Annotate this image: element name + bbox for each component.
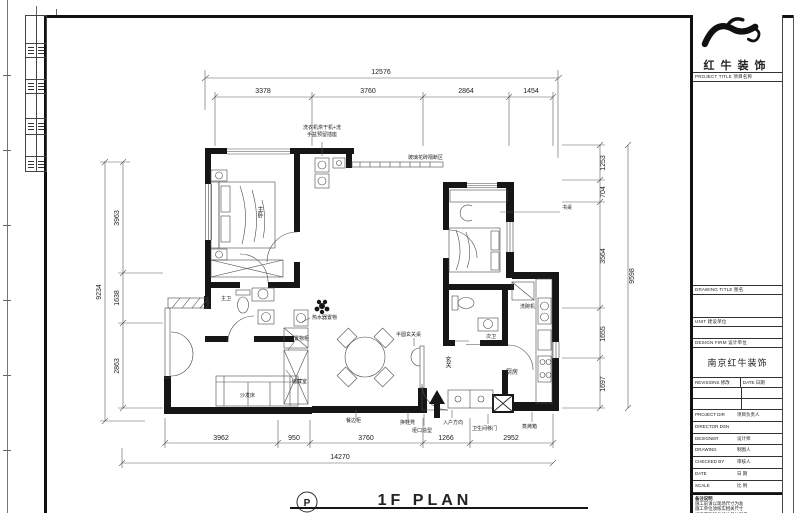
dim-top-2: 3760 xyxy=(360,88,376,95)
dim-top-overall: 12576 xyxy=(371,69,391,76)
note-laundry-1: 洗衣机烘干机+洗 xyxy=(303,124,341,131)
plant-icon xyxy=(315,300,330,314)
room-label-master-bedroom: 主卧 xyxy=(256,205,263,219)
design-firm-name: 南京红牛装饰 xyxy=(693,348,782,377)
note-water-heater: 热水器置物 xyxy=(312,314,337,321)
dim-right-2: 704 xyxy=(600,186,607,198)
kitchen: 洗碗机 厨房 xyxy=(506,279,552,403)
row-label: CHECKED BY xyxy=(693,457,737,468)
note-shoe-bench: 换鞋凳 xyxy=(400,419,415,426)
dim-bottom-2: 950 xyxy=(288,435,300,442)
row-label: DATE xyxy=(693,469,737,480)
row-director: DIRECTOR DSN xyxy=(693,422,782,434)
drawing-title-label: DRAWING TITLE 图名 xyxy=(693,285,782,295)
row-label-zh: 比 例 xyxy=(737,481,747,492)
note-steam-oven: 蒸烤箱 xyxy=(522,423,537,430)
note-desk: 书桌 xyxy=(562,204,572,211)
hatched-wall xyxy=(168,298,208,308)
dim-right-overall: 9598 xyxy=(629,268,636,284)
drawing-title-field xyxy=(693,295,782,317)
master-bedroom: 主卧 xyxy=(211,170,283,277)
row-date: DATE 日 期 xyxy=(693,469,782,481)
row-designer: DESIGNER 设计师 xyxy=(693,434,782,446)
project-title-field xyxy=(693,82,782,285)
bottom-annotations: 餐边柜 换鞋凳 垭口造型 入户方向 卫生间移门 蒸烤箱 xyxy=(346,410,537,434)
row-label: SCALE xyxy=(693,481,737,492)
dim-top-4: 1454 xyxy=(523,88,539,95)
row-label-zh: 审核人 xyxy=(737,457,751,468)
storage-box xyxy=(284,350,308,404)
laundry-closet: 洗衣机烘干机+洗 手盆预留插座 xyxy=(303,124,345,188)
dimension-bottom: 3962 950 3760 1266 2952 14270 xyxy=(119,414,556,468)
revision-row xyxy=(693,388,782,399)
dim-right-3: 3564 xyxy=(600,248,607,264)
dim-left-2: 1638 xyxy=(114,290,121,306)
dim-left-3: 2863 xyxy=(114,358,121,374)
sheet-border-right xyxy=(793,15,794,513)
dim-right-5: 1697 xyxy=(600,376,607,392)
note-partition: 玻璃花砖隔断区 xyxy=(408,154,443,161)
bull-logo-icon xyxy=(693,15,765,53)
company-logo xyxy=(693,15,782,57)
dim-bottom-5: 2952 xyxy=(503,435,519,442)
shaft-box xyxy=(493,395,513,412)
unit-field xyxy=(693,327,782,338)
dim-top-3: 2864 xyxy=(458,88,474,95)
note-doorway: 垭口造型 xyxy=(412,427,432,434)
dimension-top: 12576 3378 3760 2864 1454 xyxy=(202,69,562,158)
dim-left-overall: 9234 xyxy=(96,284,103,300)
room-label-sofa: 沙发床 xyxy=(240,392,255,399)
row-label: DESIGNER xyxy=(693,434,737,445)
note-laundry-2: 手盆预留插座 xyxy=(307,131,337,138)
floor-plan-svg: 12576 3378 3760 2864 1454 9234 3963 1638… xyxy=(0,0,690,513)
dim-right-4: 1655 xyxy=(600,326,607,342)
project-title-label: PROJECT TITLE 项目名称 xyxy=(693,72,782,82)
entry: 玄关 xyxy=(429,355,493,418)
unit-label: UNIT 建设单位 xyxy=(693,317,782,327)
row-checked-by: CHECKED BY 审核人 xyxy=(693,457,782,469)
row-label-zh: 项目负责人 xyxy=(737,410,760,421)
note-sideboard: 餐边柜 xyxy=(346,417,361,424)
glass-partition xyxy=(352,162,443,167)
note-upper-cabinet: 置物柜 xyxy=(294,335,309,342)
room-label-entry: 玄关 xyxy=(444,355,451,369)
note-dishwasher: 洗碗机 xyxy=(520,303,535,310)
wardrobe xyxy=(211,260,283,277)
row-label: DRAWING xyxy=(693,445,737,456)
title-block: 红牛装饰 PROJECT TITLE 项目名称 DRAWING TITLE 图名… xyxy=(690,15,783,513)
dim-bottom-overall: 14270 xyxy=(330,454,350,461)
dining-table xyxy=(337,328,394,387)
drawing-sheet: 12576 3378 3760 2864 1454 9234 3963 1638… xyxy=(0,0,800,513)
entry-arrow xyxy=(429,390,445,404)
row-label-zh: 日 期 xyxy=(737,469,747,480)
notes-block: 备注说明 施工前请以现场尺寸为准 施工单位须核实相关尺寸 如有不明请与设计单位联… xyxy=(693,495,782,513)
dim-right-1: 1253 xyxy=(600,155,607,171)
brand-name: 红牛装饰 xyxy=(693,57,782,72)
row-label-zh: 制图人 xyxy=(737,445,751,456)
dim-bottom-1: 3962 xyxy=(213,435,229,442)
revisions-table: REVISIONS 修改 DATE 日期 xyxy=(693,377,782,410)
master-bath: 主卫 xyxy=(221,288,274,324)
revisions-col-label: REVISIONS 修改 xyxy=(693,378,741,387)
dim-left-1: 3963 xyxy=(114,210,121,226)
note-entry-dir: 入户方向 xyxy=(443,419,463,426)
dim-bottom-3: 3760 xyxy=(358,435,374,442)
row-label-zh: 设计师 xyxy=(737,434,751,445)
sheet-title: P 1F PLAN xyxy=(290,492,588,512)
room-label-second-bath: 次卫 xyxy=(486,333,496,340)
dimension-left: 9234 3963 1638 2863 xyxy=(96,159,163,424)
second-bath: 次卫 xyxy=(452,296,498,340)
revision-row xyxy=(693,399,782,410)
note-storage: 储藏室 xyxy=(292,378,307,385)
row-scale: SCALE 比 例 xyxy=(693,481,782,493)
room-label-kitchen: 厨房 xyxy=(506,368,518,376)
design-firm-label: DESIGN FIRM 设计单位 xyxy=(693,338,782,348)
note-bath-door: 卫生间移门 xyxy=(472,425,497,432)
date-col-label: DATE 日期 xyxy=(741,378,782,387)
row-drawing: DRAWING 制图人 xyxy=(693,445,782,457)
dimension-right: 1253 704 3564 1655 1697 9598 xyxy=(562,142,636,411)
room-label-master-bath: 主卫 xyxy=(221,295,231,302)
row-label: PROJECT DIR xyxy=(693,410,737,421)
row-label: DIRECTOR DSN xyxy=(693,422,737,433)
dim-top-1: 3378 xyxy=(255,88,271,95)
walls xyxy=(164,148,559,414)
note-console: 半圆玄关桌 xyxy=(396,331,421,338)
row-project-dir: PROJECT DIR 项目负责人 xyxy=(693,410,782,422)
sheet-title-text: 1F PLAN xyxy=(378,492,473,509)
dim-bottom-4: 1266 xyxy=(438,435,454,442)
hall-cabinets: 热水器置物 置物柜 储藏室 xyxy=(284,310,337,404)
